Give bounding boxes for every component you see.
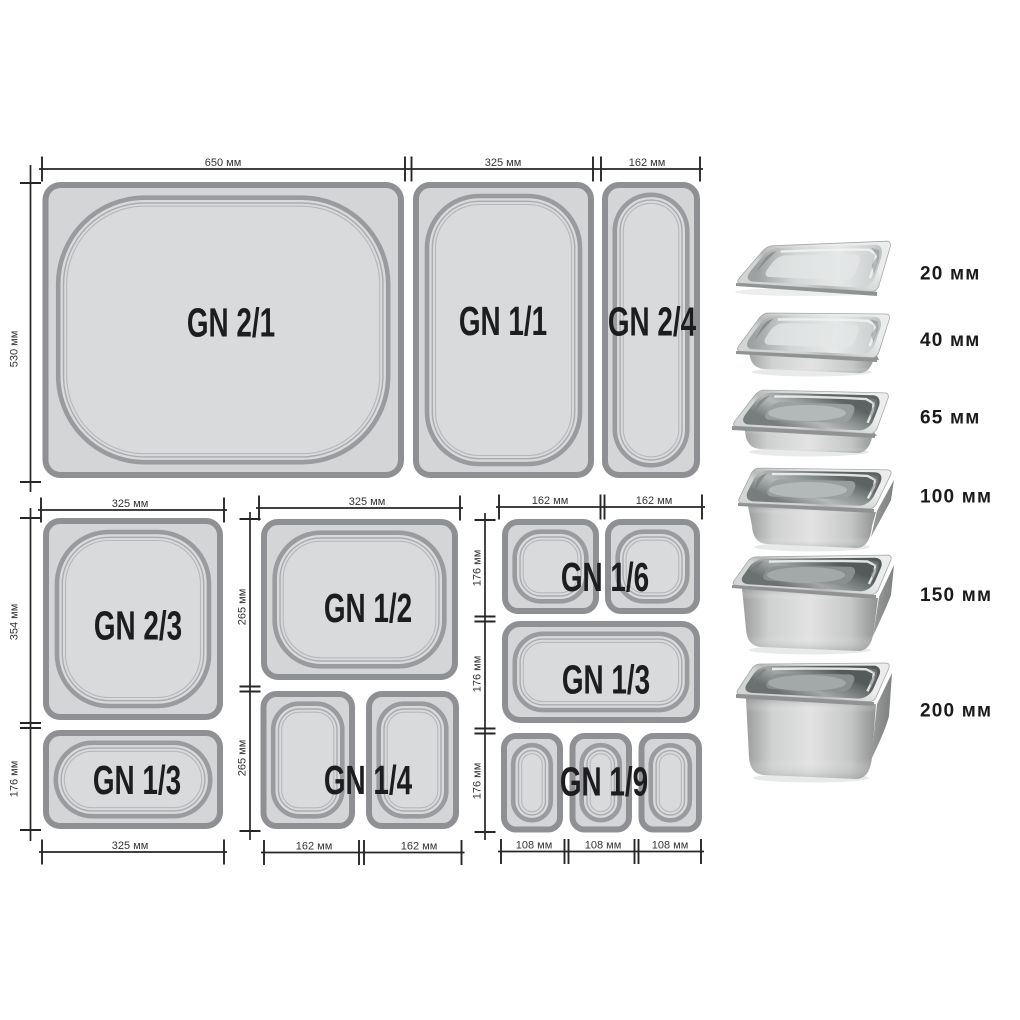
svg-text:176 мм: 176 мм (9, 761, 21, 798)
svg-text:40 мм: 40 мм (920, 330, 981, 351)
svg-text:176 мм: 176 мм (472, 656, 484, 693)
svg-text:GN 2/3: GN 2/3 (94, 603, 182, 649)
svg-text:325 мм: 325 мм (112, 840, 149, 852)
svg-text:325 мм: 325 мм (485, 157, 522, 169)
svg-text:650 мм: 650 мм (205, 157, 242, 169)
svg-text:162 мм: 162 мм (296, 841, 333, 853)
svg-text:265 мм: 265 мм (237, 589, 249, 626)
svg-text:530 мм: 530 мм (9, 331, 21, 368)
svg-text:108 мм: 108 мм (652, 840, 689, 852)
svg-text:GN 1/4: GN 1/4 (324, 758, 413, 804)
svg-text:108 мм: 108 мм (585, 840, 622, 852)
svg-text:20 мм: 20 мм (920, 264, 981, 285)
svg-text:GN 2/1: GN 2/1 (187, 300, 275, 346)
svg-text:GN 1/2: GN 1/2 (324, 586, 412, 632)
svg-text:325 мм: 325 мм (112, 498, 149, 510)
svg-text:108 мм: 108 мм (516, 840, 553, 852)
svg-text:162 мм: 162 мм (629, 157, 666, 169)
svg-text:GN 1/9: GN 1/9 (560, 759, 648, 805)
svg-text:162 мм: 162 мм (532, 495, 569, 507)
svg-text:176 мм: 176 мм (472, 763, 484, 800)
svg-text:100 мм: 100 мм (920, 487, 992, 508)
svg-text:GN 2/4: GN 2/4 (608, 299, 697, 345)
svg-text:GN 1/3: GN 1/3 (93, 758, 181, 804)
svg-text:200 мм: 200 мм (920, 701, 992, 722)
svg-text:162 мм: 162 мм (636, 495, 673, 507)
svg-text:162 мм: 162 мм (401, 841, 438, 853)
svg-text:265 мм: 265 мм (237, 740, 249, 777)
svg-text:65 мм: 65 мм (920, 408, 981, 429)
svg-text:176 мм: 176 мм (472, 550, 484, 587)
svg-text:354 мм: 354 мм (9, 604, 21, 641)
svg-text:GN 1/6: GN 1/6 (561, 555, 649, 601)
svg-text:GN 1/3: GN 1/3 (562, 657, 650, 703)
svg-text:325 мм: 325 мм (349, 496, 386, 508)
svg-text:150 мм: 150 мм (920, 585, 992, 606)
svg-text:GN 1/1: GN 1/1 (459, 299, 547, 345)
